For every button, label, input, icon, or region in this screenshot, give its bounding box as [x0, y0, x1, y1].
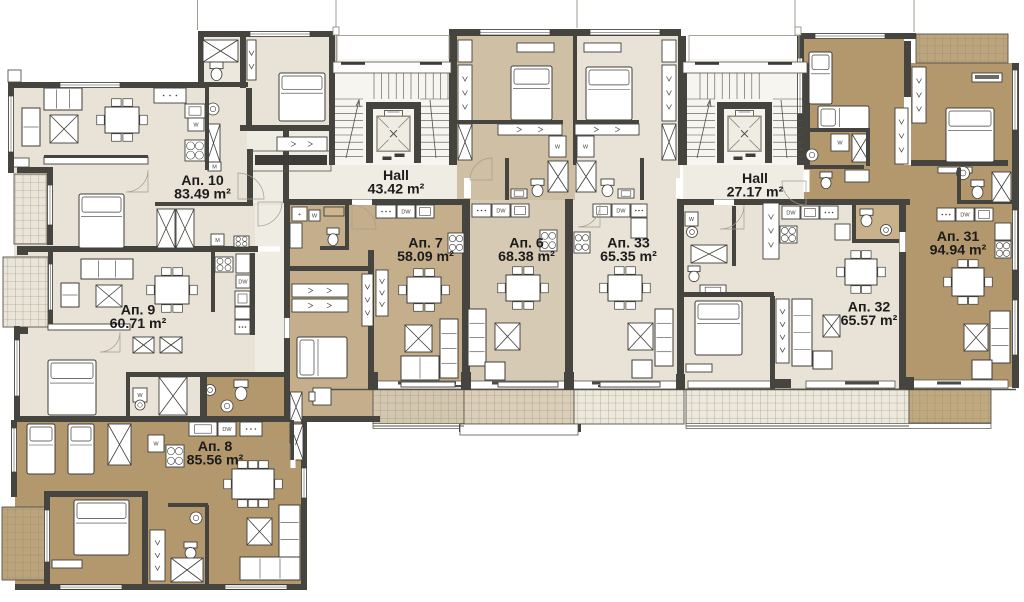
- svg-text:DW: DW: [222, 427, 232, 433]
- svg-text:DW: DW: [238, 280, 248, 286]
- svg-text:65.35 m²: 65.35 m²: [600, 249, 657, 265]
- svg-text:M: M: [215, 238, 220, 244]
- svg-text:65.57 m²: 65.57 m²: [841, 313, 898, 329]
- svg-text:43.42 m²: 43.42 m²: [368, 182, 425, 198]
- svg-text:M: M: [212, 165, 217, 171]
- svg-text:85.56 m²: 85.56 m²: [187, 453, 244, 469]
- svg-text:+: +: [298, 212, 301, 218]
- svg-text:W: W: [583, 145, 589, 151]
- svg-text:94.94 m²: 94.94 m²: [930, 243, 987, 259]
- svg-text:W: W: [193, 123, 199, 129]
- svg-text:W: W: [555, 145, 561, 151]
- svg-text:83.49 m²: 83.49 m²: [174, 187, 231, 203]
- svg-text:W: W: [837, 141, 843, 147]
- svg-text:W: W: [153, 442, 159, 448]
- svg-text:DW: DW: [496, 209, 506, 215]
- svg-text:DW: DW: [401, 210, 411, 216]
- svg-text:DW: DW: [616, 209, 626, 215]
- svg-text:68.38 m²: 68.38 m²: [498, 249, 555, 265]
- svg-text:27.17 m²: 27.17 m²: [727, 185, 784, 201]
- svg-text:DW: DW: [960, 213, 970, 219]
- svg-text:60.71 m²: 60.71 m²: [110, 316, 167, 332]
- svg-text:W: W: [312, 214, 318, 220]
- svg-text:58.09 m²: 58.09 m²: [397, 249, 454, 265]
- svg-text:DW: DW: [786, 211, 796, 217]
- svg-text:W: W: [137, 393, 143, 399]
- svg-text:W: W: [689, 217, 695, 223]
